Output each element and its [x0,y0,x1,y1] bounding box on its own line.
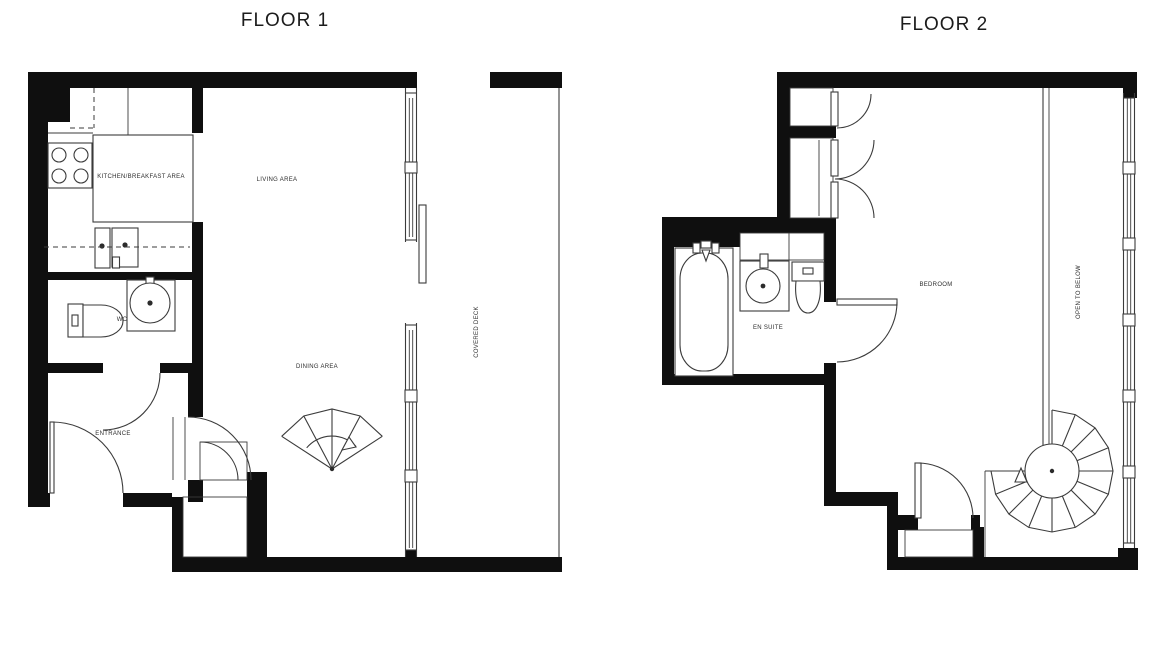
floorplan-drawing [0,0,1170,648]
floor1-doors [50,373,251,557]
stove-icon [48,143,92,188]
room-label-entrance: ENTRANCE [95,431,130,437]
closet-double-doors [831,140,874,218]
room-label-open-to-below: OPEN TO BELOW [1076,265,1082,319]
stair-direction-arrow [342,437,356,450]
ensuite-fixtures [675,233,897,376]
wc-fixtures [68,277,175,337]
bathtub-icon [675,241,733,376]
closet-door-top [831,92,871,128]
floorplan-canvas: FLOOR 1 FLOOR 2 KITCHEN/BREAKFAST AREA L… [0,0,1170,648]
room-label-wc: WC [117,317,128,323]
spiral-stairs-icon [991,410,1113,532]
room-label-bedroom: BEDROOM [919,282,952,288]
ensuite-toilet-icon [792,262,824,313]
porch-step [183,497,247,557]
shelf-recess [740,233,824,260]
winder-stairs-icon [282,409,383,471]
sliding-door-panel [419,205,426,283]
floor1-glass-wall [405,88,426,557]
floor2-glass-wall [1123,93,1135,548]
bedroom-door [905,463,973,557]
room-label-ensuite: EN SUITE [753,325,783,331]
basin-icon [127,277,175,331]
ensuite-door [837,299,897,362]
floor2-title: FLOOR 2 [900,14,988,36]
room-label-dining: DINING AREA [296,364,338,370]
sink-units-icon [44,228,190,268]
toilet-icon [68,304,123,337]
room-label-living: LIVING AREA [257,177,298,183]
entrance-inner-door [103,373,160,430]
room-label-kitchen: KITCHEN/BREAKFAST AREA [97,174,185,180]
dining-door [173,417,251,480]
floor2-closets [790,88,874,218]
ensuite-basin-icon [740,254,789,311]
stair-landing [905,530,973,557]
room-label-covered-deck: COVERED DECK [474,306,480,358]
floor1-title: FLOOR 1 [241,10,329,32]
